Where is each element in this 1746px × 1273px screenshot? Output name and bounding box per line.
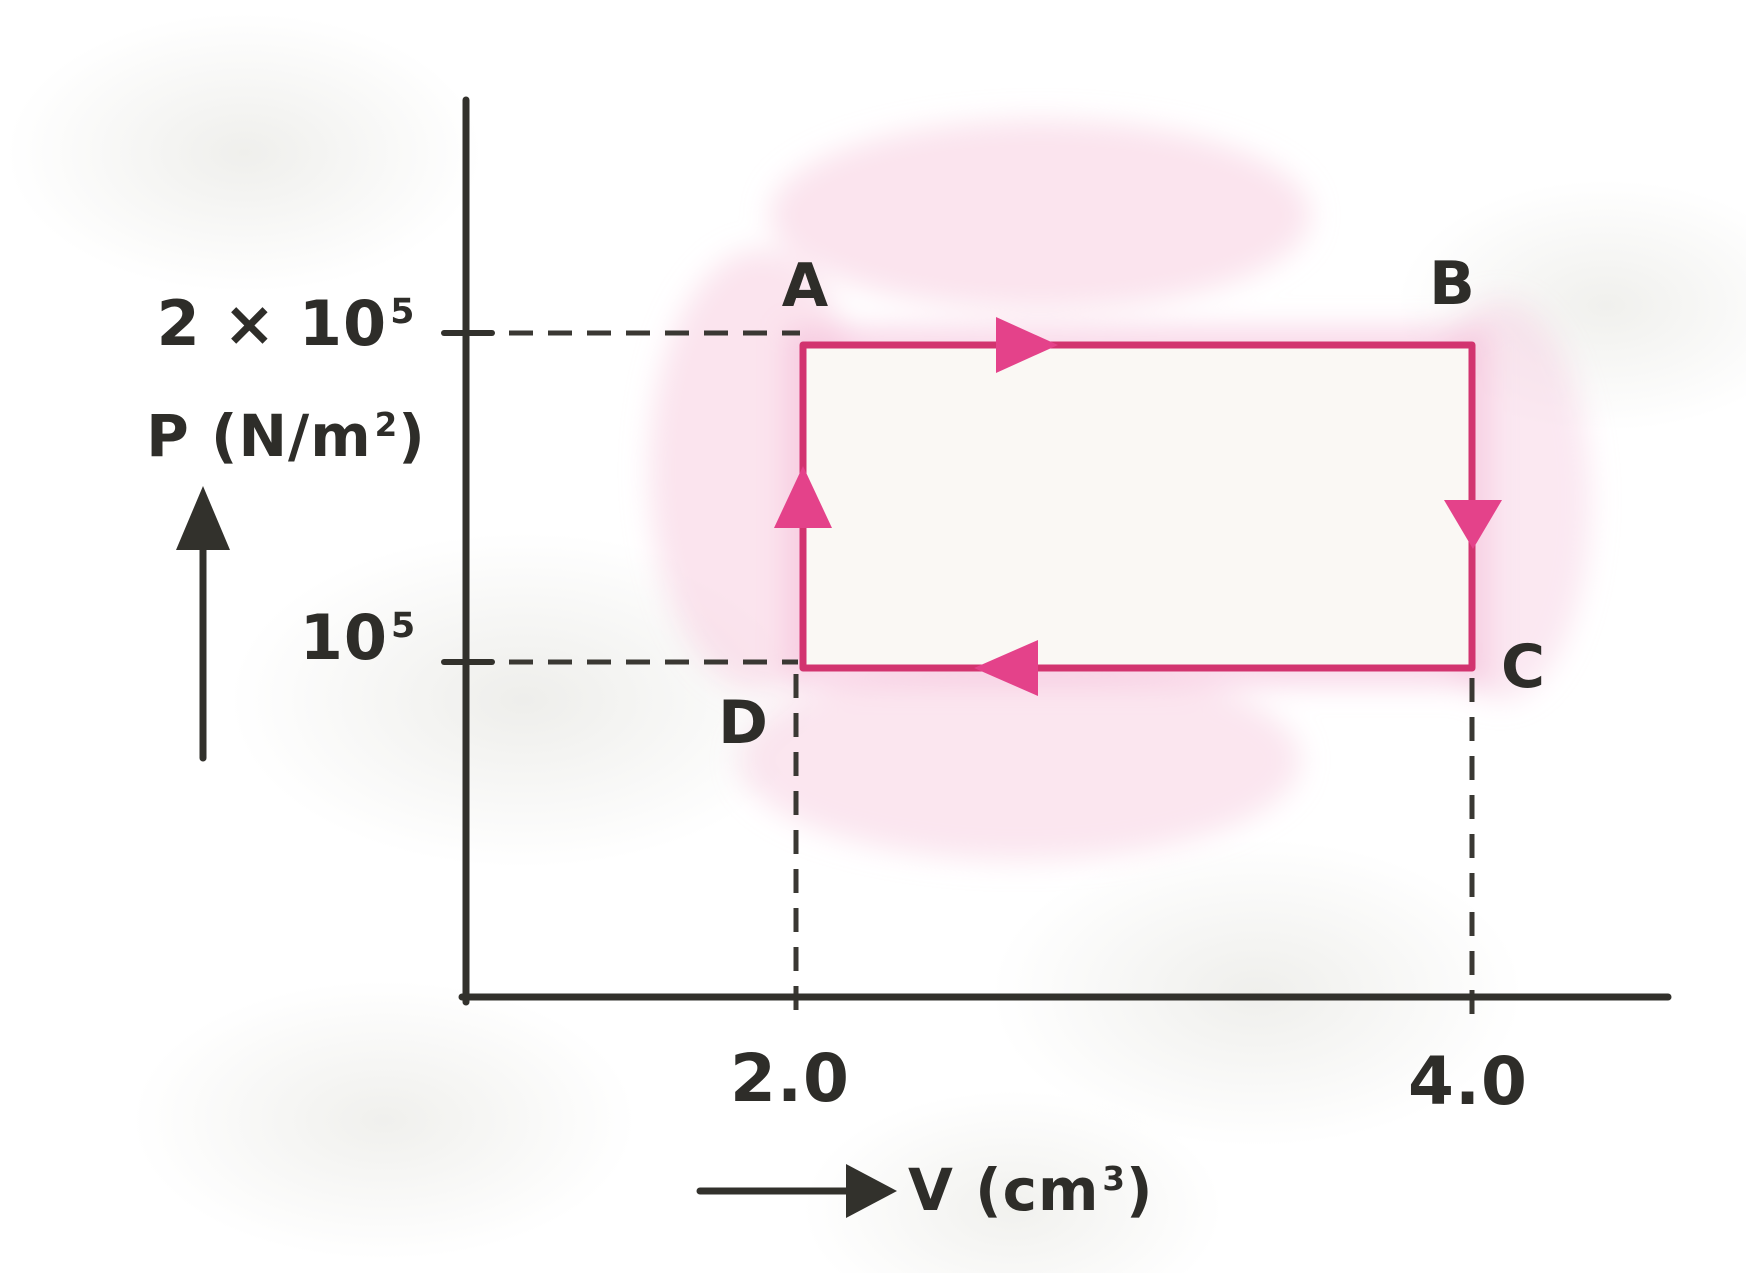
p-axis-title: P (N/m2) [146, 407, 425, 465]
v-axis-title-sup: 3 [1102, 1160, 1126, 1198]
y-tick-2e5-sup: 5 [390, 292, 415, 332]
v-axis-title-post: ) [1126, 1156, 1154, 1224]
p-axis-title-pre: P (N/m [146, 402, 371, 470]
x-tick-label-2: 2.0 [730, 1046, 850, 1112]
y-tick-label-1e5: 105 [300, 607, 416, 669]
cycle-rectangle-fill [803, 345, 1472, 668]
y-tick-2e5-base: 2 × 10 [157, 287, 388, 360]
y-tick-1e5-base: 10 [300, 601, 388, 674]
pv-diagram-figure: 2 × 105 105 P (N/m2) V (cm3) 2.0 4.0 A B… [0, 0, 1746, 1273]
y-tick-1e5-sup: 5 [391, 606, 416, 646]
p-axis-title-sup: 2 [375, 406, 399, 444]
point-label-c: C [1501, 637, 1545, 697]
v-axis-title-pre: V (cm [908, 1156, 1099, 1224]
point-label-a: A [782, 256, 828, 316]
point-label-b: B [1429, 254, 1475, 314]
v-axis-title: V (cm3) [908, 1161, 1154, 1219]
point-label-d: D [718, 693, 768, 753]
x-tick-label-4: 4.0 [1408, 1049, 1528, 1115]
p-axis-direction-arrow-icon [176, 486, 230, 758]
y-tick-label-2e5: 2 × 105 [157, 293, 416, 355]
v-axis-direction-arrow-icon [700, 1164, 897, 1218]
p-axis-title-post: ) [398, 402, 426, 470]
